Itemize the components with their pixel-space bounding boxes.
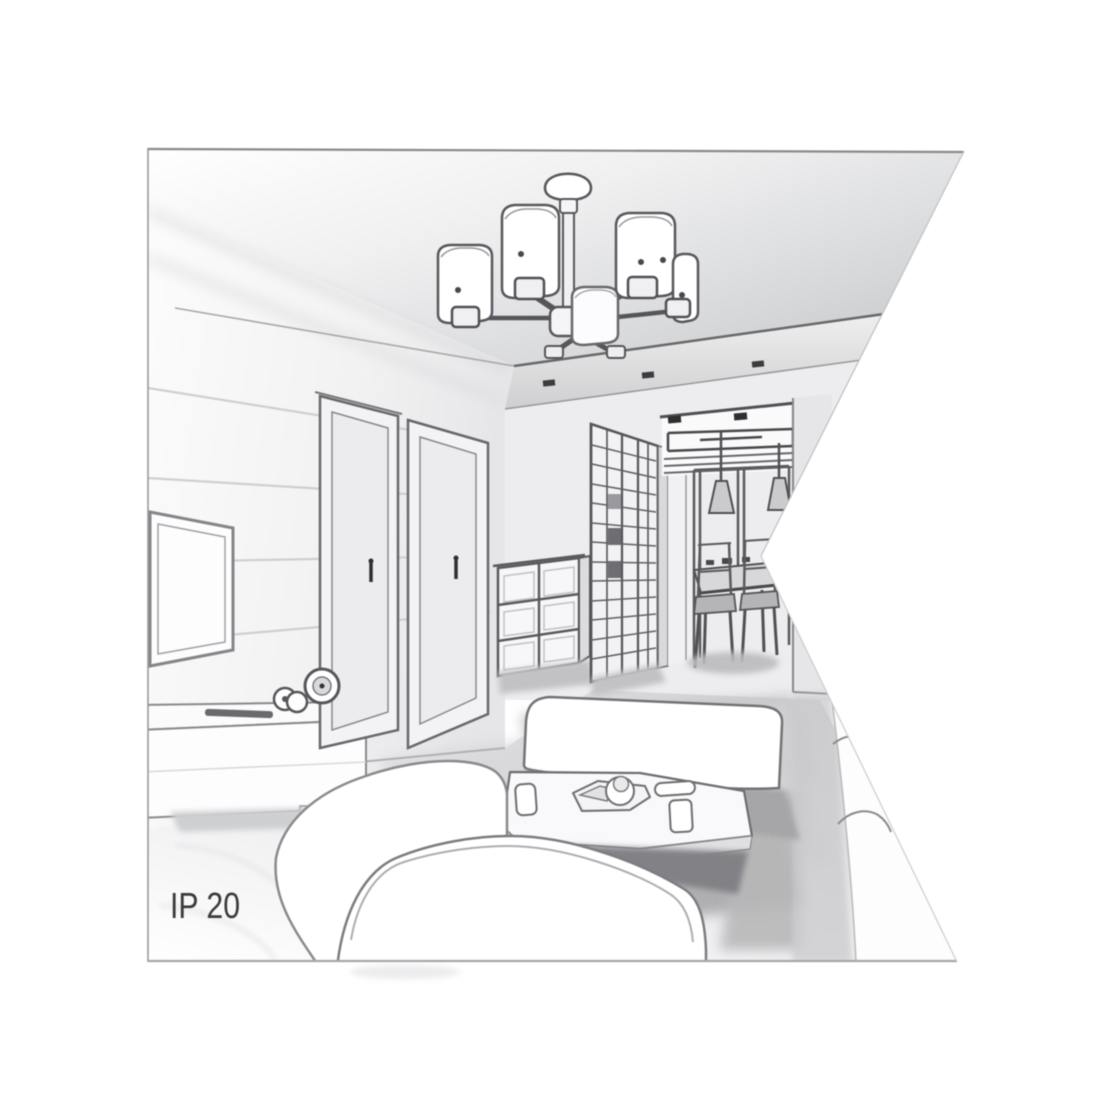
svg-text:IP 20: IP 20 bbox=[170, 885, 240, 926]
